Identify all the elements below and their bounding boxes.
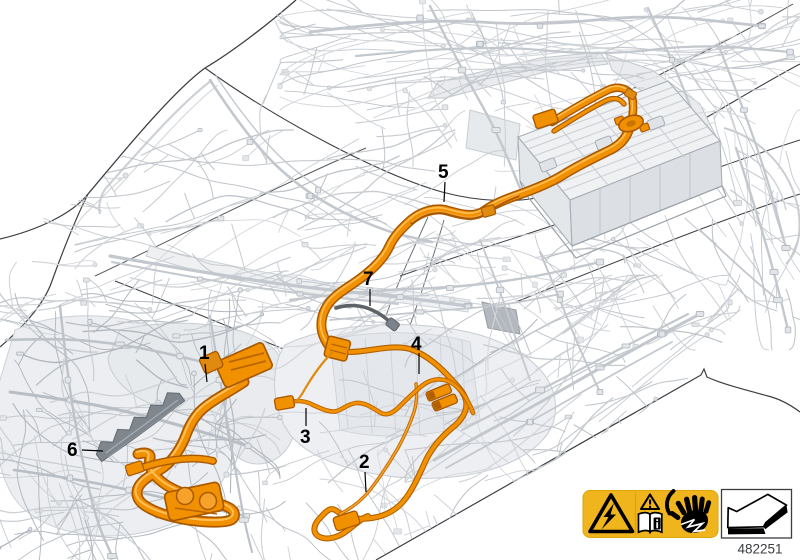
svg-text:482251: 482251 xyxy=(738,542,783,557)
svg-text:1: 1 xyxy=(199,343,210,364)
svg-text:3: 3 xyxy=(300,427,311,448)
svg-text:4: 4 xyxy=(411,334,422,355)
svg-text:5: 5 xyxy=(438,162,449,183)
svg-text:7: 7 xyxy=(363,269,374,290)
svg-text:6: 6 xyxy=(67,440,78,461)
svg-text:2: 2 xyxy=(359,452,370,473)
